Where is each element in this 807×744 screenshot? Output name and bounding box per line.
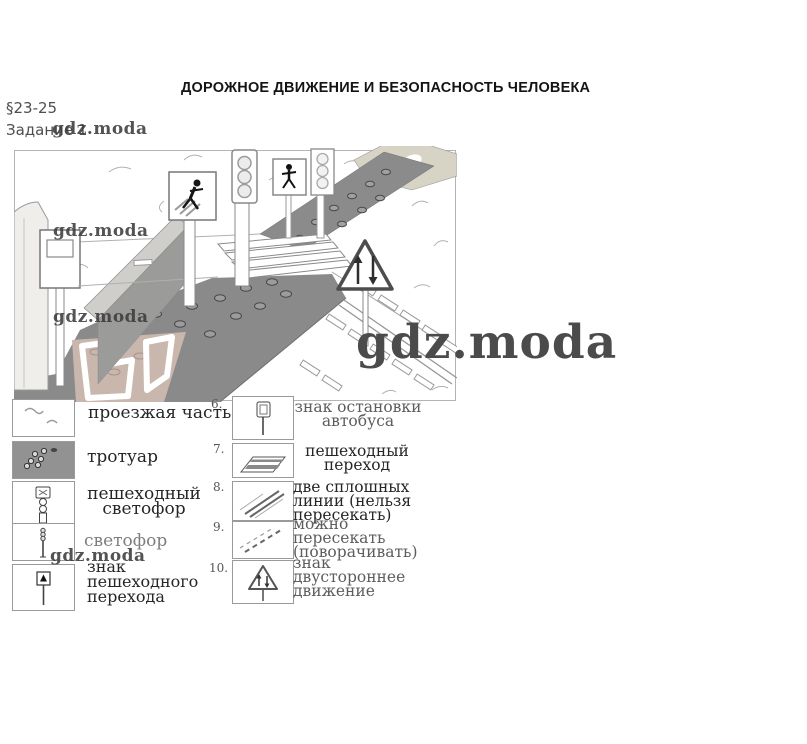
legend-number: 9. bbox=[213, 520, 224, 534]
legend-number: 10. bbox=[209, 561, 228, 575]
scanned-textbook-page: { "header": { "title": "ДОРОЖНОЕ ДВИЖЕНИ… bbox=[0, 0, 807, 744]
legend-item-double-solid bbox=[232, 481, 294, 521]
section-number: §23-25 bbox=[6, 99, 57, 117]
legend-item-crossing-sign bbox=[12, 564, 75, 611]
two-way-traffic-sign-icon bbox=[233, 561, 293, 603]
sidewalk-swatch-icon bbox=[13, 442, 74, 478]
legend-label-sidewalk: тротуар bbox=[87, 450, 158, 465]
legend-label-roadway: проезжая часть bbox=[88, 406, 231, 421]
watermark-large: gdz.moda bbox=[356, 315, 617, 370]
legend-label-dashed-line: можно пересекать (поворачивать) bbox=[293, 517, 418, 559]
legend-item-two-way bbox=[232, 560, 294, 604]
watermark: gdz.moda bbox=[53, 221, 149, 241]
legend-number: 7. bbox=[213, 442, 224, 456]
crosswalk-sign-icon bbox=[13, 565, 74, 610]
legend-item-crosswalk bbox=[232, 443, 294, 478]
legend-item-sidewalk bbox=[12, 441, 75, 479]
legend-item-dashed-line bbox=[232, 521, 294, 559]
legend-label-two-way: знак двустороннее движение bbox=[293, 556, 405, 598]
watermark: gdz.moda bbox=[53, 307, 149, 327]
legend-item-roadway bbox=[12, 399, 75, 437]
pedestrian-signal-icon bbox=[13, 482, 74, 528]
dashed-line-icon bbox=[233, 522, 293, 558]
legend-label-crosswalk: пешеходный переход bbox=[294, 444, 420, 472]
crosswalk-icon bbox=[233, 444, 293, 477]
legend-number: 6. bbox=[211, 397, 222, 411]
bus-stop-sign-icon bbox=[233, 397, 293, 439]
legend-number: 8. bbox=[213, 480, 224, 494]
watermark: gdz.moda bbox=[52, 119, 148, 139]
double-solid-line-icon bbox=[233, 482, 293, 520]
roadway-swatch-icon bbox=[13, 400, 74, 436]
legend-item-bus-stop bbox=[232, 396, 294, 440]
page-title: ДОРОЖНОЕ ДВИЖЕНИЕ И БЕЗОПАСНОСТЬ ЧЕЛОВЕК… bbox=[181, 80, 590, 96]
legend-item-pedestrian-signal bbox=[12, 481, 75, 529]
legend-label-bus-stop: знак остановки автобуса bbox=[292, 400, 424, 428]
legend-label-pedestrian-signal: пешеходный светофор bbox=[84, 487, 204, 517]
watermark: gdz.moda bbox=[50, 546, 146, 566]
